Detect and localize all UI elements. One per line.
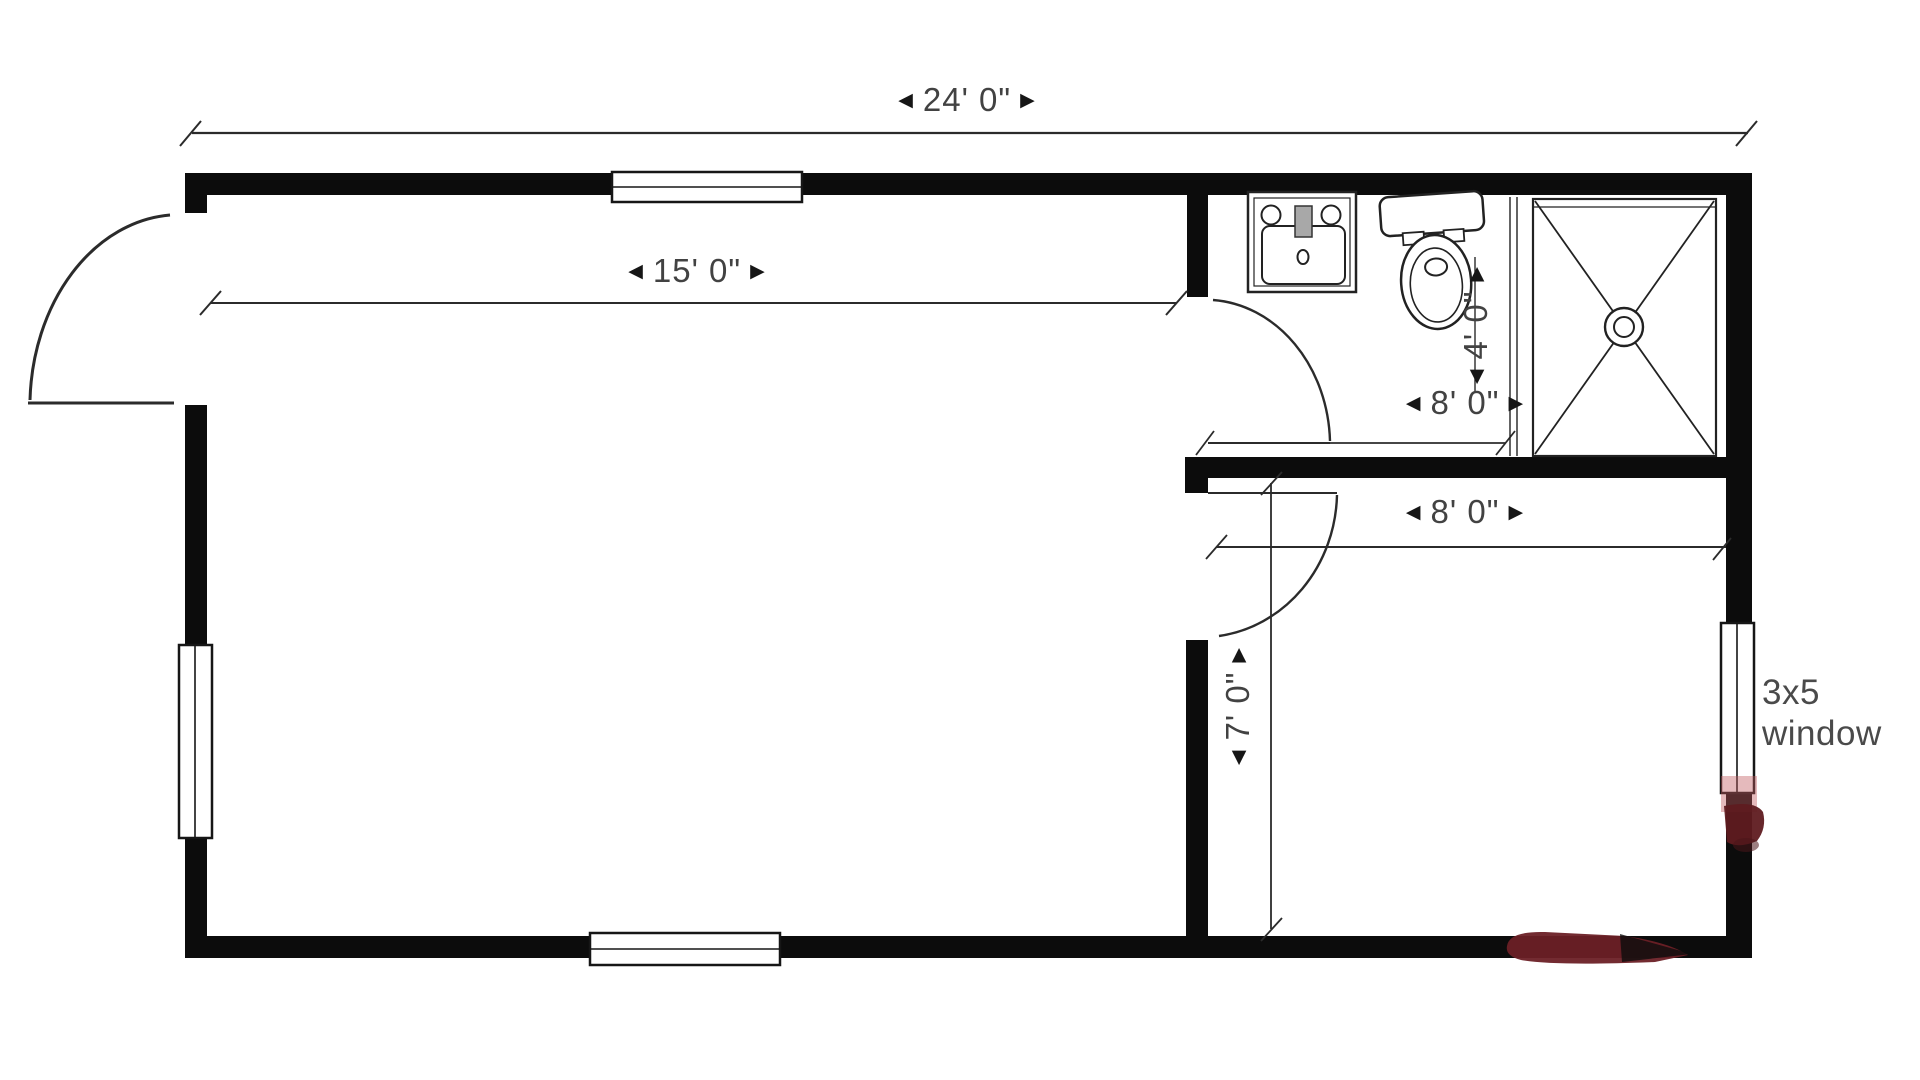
entry-door-swing-arc [30, 215, 170, 400]
dim-label-bathroom-width: ◀ 8' 0" ▶ [1406, 384, 1524, 422]
bottom-window [590, 933, 780, 965]
sink [1248, 192, 1356, 292]
floorplan-drawing [0, 0, 1920, 1080]
bathroom-bedroom-divider-wall [1185, 457, 1752, 478]
entry-door [28, 215, 174, 403]
top-wall [185, 173, 1752, 195]
red-smudge-right-window [1721, 776, 1764, 852]
arrow-up-icon: ▶ [1467, 266, 1486, 282]
dim-value-living-room-width: 15' 0" [653, 252, 741, 290]
divider-door-stub [1185, 457, 1208, 493]
bedroom-door-swing-arc [1219, 495, 1337, 636]
faucet-handle-left [1262, 206, 1281, 225]
bathroom-door [1208, 300, 1330, 443]
dim-value-overall-width: 24' 0" [923, 81, 1011, 119]
bedroom-width-dim-line [1206, 535, 1731, 560]
shower-drain [1605, 308, 1643, 346]
right-window-note-line1: 3x5 [1762, 672, 1882, 713]
top-window [612, 172, 802, 202]
arrow-left-icon: ◀ [1406, 503, 1422, 522]
arrow-left-icon: ◀ [898, 91, 914, 110]
arrow-left-icon: ◀ [1406, 394, 1422, 413]
dim-label-overall-width: ◀ 24' 0" ▶ [898, 81, 1036, 119]
dim-value-bathroom-depth: 4' 0" [1457, 291, 1495, 360]
overall-width-dim-line [180, 121, 1757, 146]
dim-value-bedroom-depth: 7' 0" [1219, 672, 1257, 741]
right-window [1721, 623, 1754, 793]
dim-label-bathroom-depth: ◀ 4' 0" ▶ [1457, 266, 1495, 384]
bedroom-left-wall [1186, 640, 1208, 937]
faucet-spout [1295, 206, 1312, 237]
arrow-right-icon: ▶ [1508, 394, 1524, 413]
dim-value-bathroom-width: 8' 0" [1431, 384, 1500, 422]
dim-label-living-room-width: ◀ 15' 0" ▶ [628, 252, 766, 290]
arrow-down-icon: ◀ [1467, 368, 1486, 384]
toilet-tank [1379, 191, 1484, 237]
arrow-down-icon: ◀ [1229, 749, 1248, 765]
faucet-handle-right [1322, 206, 1341, 225]
arrow-right-icon: ▶ [750, 262, 766, 281]
dim-label-bedroom-width: ◀ 8' 0" ▶ [1406, 493, 1524, 531]
bedroom-door [1208, 493, 1337, 636]
bathroom-door-swing-arc [1213, 300, 1330, 441]
bathroom-partition-stub [1187, 195, 1208, 297]
bedroom-depth-dim-line [1261, 472, 1282, 941]
floor-plan: ◀ 24' 0" ▶ ◀ 15' 0" ▶ ◀ 8' 0" ▶ ◀ 8' 0" … [0, 0, 1920, 1080]
arrow-right-icon: ▶ [1020, 91, 1036, 110]
dim-label-bedroom-depth: ◀ 7' 0" ▶ [1219, 647, 1257, 765]
right-window-note-line2: window [1762, 713, 1882, 754]
shower [1510, 197, 1716, 456]
living-room-width-dim-line [200, 291, 1187, 315]
left-wall-upper-stub [185, 173, 207, 213]
left-window [179, 645, 212, 838]
arrow-up-icon: ▶ [1229, 647, 1248, 663]
dim-value-bedroom-width: 8' 0" [1431, 493, 1500, 531]
right-window-note: 3x5 window [1762, 672, 1882, 754]
arrow-right-icon: ▶ [1508, 503, 1524, 522]
arrow-left-icon: ◀ [628, 262, 644, 281]
